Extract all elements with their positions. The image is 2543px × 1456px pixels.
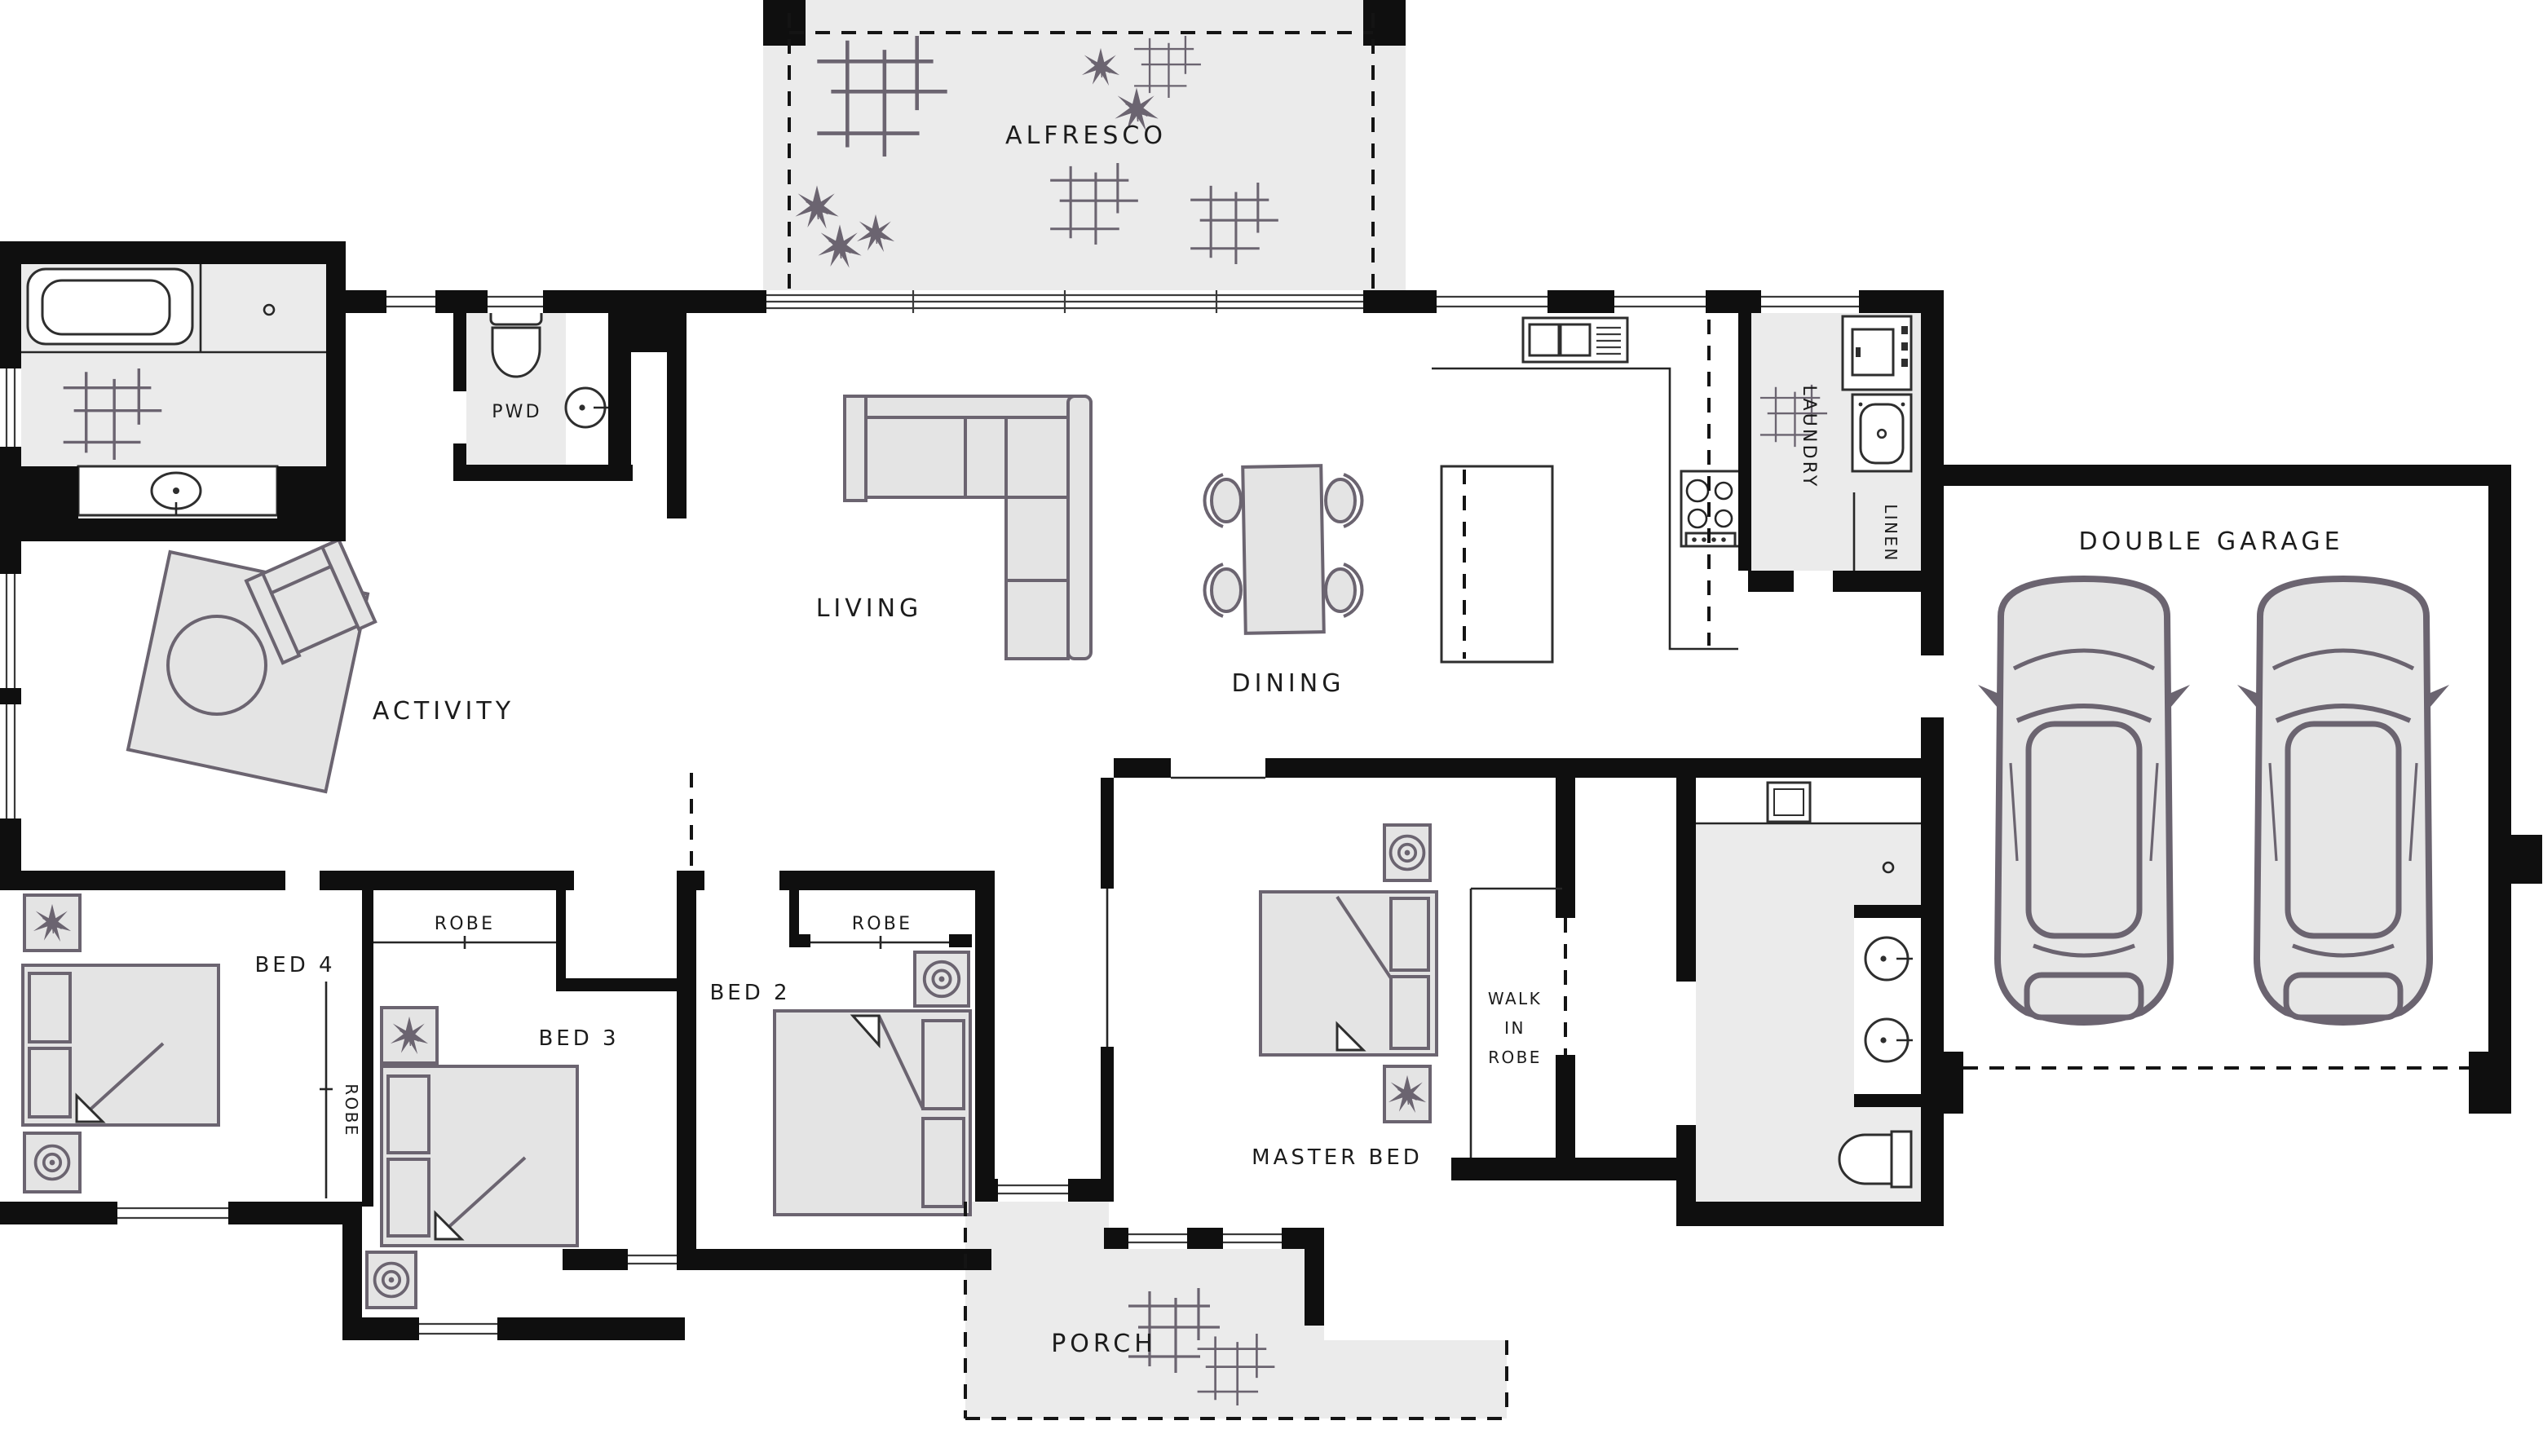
label-robe-bed4: ROBE [342,1083,361,1137]
window-laundry [1761,290,1859,313]
master-bed-furniture [1260,825,1437,1122]
label-wir-1: WALK [1488,989,1542,1008]
label-robe-bed3: ROBE [435,914,495,934]
window-pwd [488,290,543,313]
activity-furniture [128,540,375,792]
window-activity-1 [0,574,21,688]
bathtub-inner [42,280,170,334]
kitchen-island [1441,466,1552,662]
dining-table [1243,465,1324,633]
label-master-bed: MASTER BED [1252,1145,1423,1170]
washing-machine [1843,316,1911,390]
front-door [998,1179,1068,1202]
pwd-toilet-bowl [492,328,540,377]
label-robe-bed2: ROBE [852,914,912,934]
bath-basin-drain-icon [173,488,179,494]
label-porch: PORCH [1051,1330,1157,1358]
window-hall-top [386,290,435,313]
window-master-1 [1128,1228,1187,1249]
label-garage: DOUBLE GARAGE [2078,527,2343,556]
label-living: LIVING [816,594,923,623]
kitchen [1432,318,1740,662]
laundry-tub [1852,395,1911,471]
label-activity: ACTIVITY [373,697,514,726]
ensuite-toilet [1839,1132,1911,1187]
window-bed4 [117,1202,228,1224]
ensuite-shower-floor [1696,823,1921,916]
window-bathroom-left [0,368,21,447]
label-bed3: BED 3 [538,1026,619,1051]
label-alfresco: ALFRESCO [1005,121,1167,150]
activity-table [168,616,266,714]
alfresco-sliding-doors [766,290,1363,313]
window-kitchen-2 [1614,290,1706,313]
window-bed2 [628,1249,677,1270]
window-activity-2 [0,704,21,818]
kitchen-sink [1523,318,1627,362]
label-dining: DINING [1232,669,1345,698]
label-pwd: PWD [492,402,542,422]
car-left [1978,579,2190,1022]
window-kitchen-1 [1437,290,1547,313]
window-master-2 [1223,1228,1282,1249]
floor-plan-canvas: ALFRESCO PWD LIVING DINING LAUNDRY LINEN… [0,0,2543,1456]
label-wir-3: ROBE [1488,1048,1542,1067]
label-linen: LINEN [1881,504,1901,563]
bed3-furniture [367,1008,577,1308]
ensuite-floor [1696,916,1854,1202]
floor-plan-drawing: ALFRESCO PWD LIVING DINING LAUNDRY LINEN… [0,0,2543,1456]
bed2-furniture [775,952,970,1215]
label-bed4: BED 4 [254,953,335,977]
floor-plan-page: ALFRESCO PWD LIVING DINING LAUNDRY LINEN… [0,0,2543,1456]
label-laundry: LAUNDRY [1799,385,1819,488]
window-bed3 [419,1317,497,1340]
dining-set [1204,465,1362,633]
label-wir-2: IN [1504,1018,1525,1038]
label-bed2: BED 2 [709,981,790,1005]
car-right [2237,579,2449,1022]
bed4-furniture [23,895,219,1192]
pwd-basin-drain-icon [579,404,585,410]
